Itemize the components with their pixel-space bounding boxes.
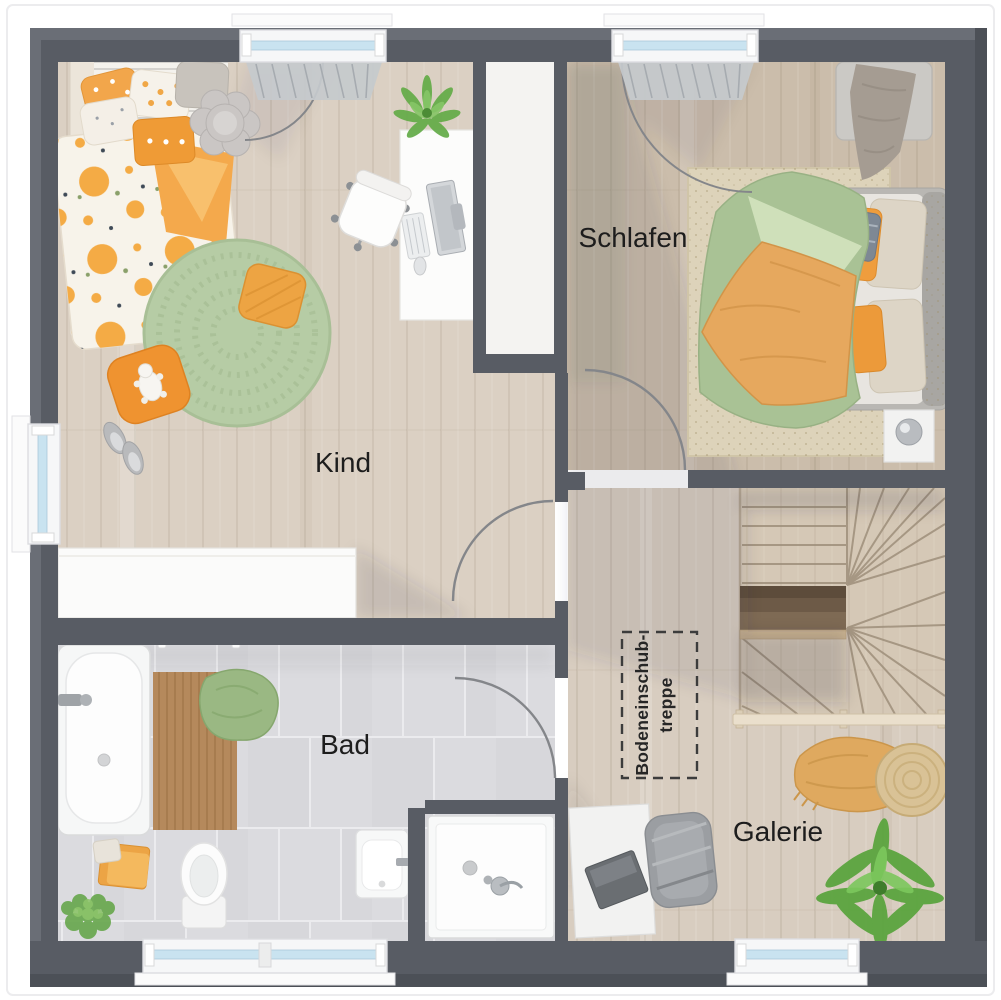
wall-schlafen-south [688, 470, 945, 488]
washbasin [356, 830, 410, 898]
nightstand-lamp [896, 419, 922, 445]
window-galerie-bottom [727, 939, 867, 985]
label-schlafen: Schlafen [579, 222, 688, 253]
floorplan-image: Bodeneinschub- treppe Kind Schlafen Bad … [0, 0, 1001, 1000]
wall-schlafen-south-stub [555, 472, 585, 490]
window-kind-left [12, 416, 60, 552]
floorplan-svg: Bodeneinschub- treppe Kind Schlafen Bad … [0, 0, 1001, 1000]
wall-shower-north [425, 800, 555, 814]
green-towel [200, 669, 278, 740]
galerie-desk [569, 804, 656, 938]
wall-bad-east-upper [555, 645, 568, 678]
label-galerie: Galerie [733, 816, 823, 847]
desk-mouse [414, 257, 426, 275]
attic-stairs-label-line1: Bodeneinschub- [632, 634, 652, 775]
nightstand [884, 410, 934, 462]
wardrobe [486, 62, 554, 354]
label-kind: Kind [315, 447, 371, 478]
shower [428, 816, 554, 938]
bathtub-faucet [58, 694, 82, 706]
galerie-armchair [643, 811, 718, 909]
window-bad-bottom [135, 939, 395, 985]
bathtub [58, 645, 150, 835]
wall-bad-east-lower [555, 778, 568, 941]
toilet [181, 843, 227, 928]
label-bad: Bad [320, 729, 370, 760]
stairwell-opening [740, 586, 846, 639]
kind-sideboard [58, 548, 356, 618]
wall-bad-north [58, 618, 568, 645]
galerie-rattan-basket [876, 744, 948, 816]
attic-stairs-label-line2: treppe [656, 677, 676, 732]
wall-shower-partition [408, 808, 425, 941]
washbasin-faucet [396, 858, 410, 866]
schlafen-bed [699, 172, 949, 428]
